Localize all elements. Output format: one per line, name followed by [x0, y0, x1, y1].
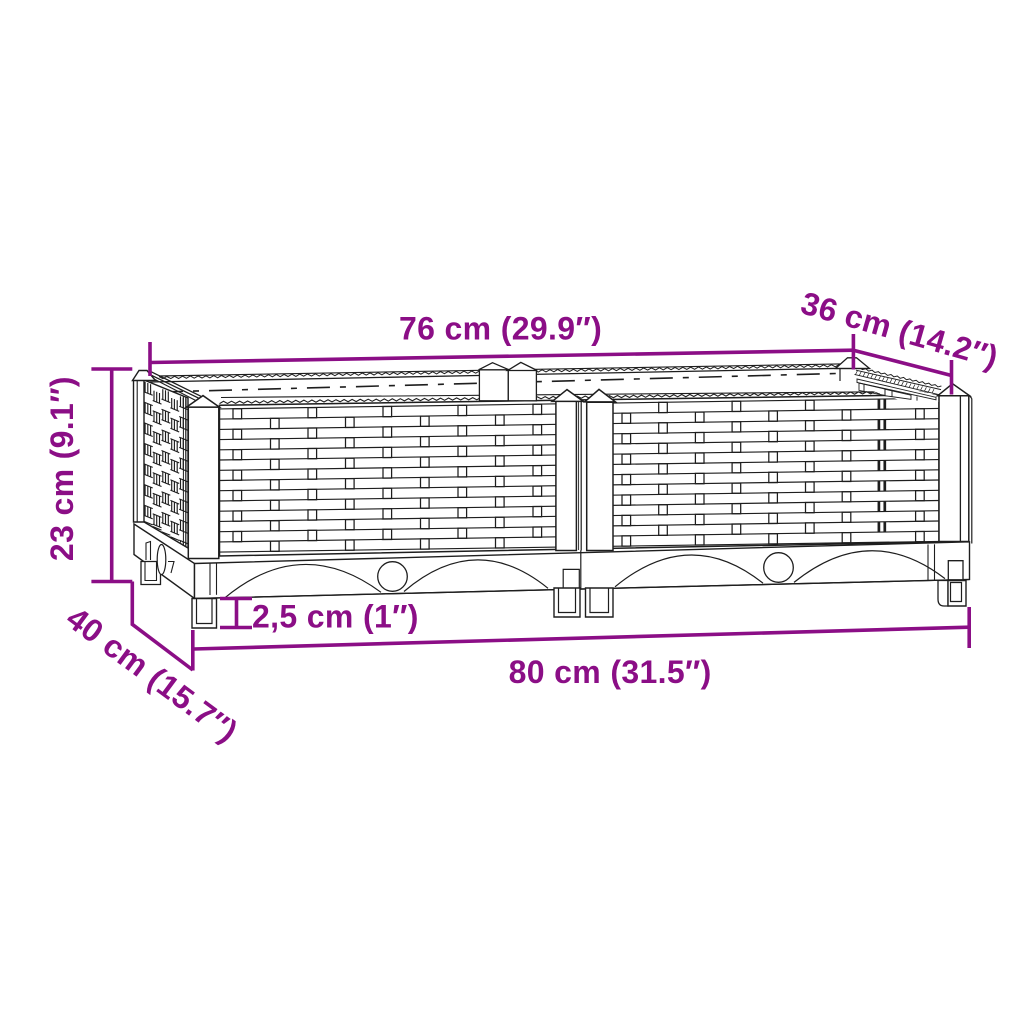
- svg-text:80 cm (31.5″): 80 cm (31.5″): [509, 654, 712, 690]
- svg-text:2,5 cm (1″): 2,5 cm (1″): [252, 599, 419, 635]
- svg-text:23 cm (9.1″): 23 cm (9.1″): [44, 376, 80, 561]
- svg-text:76 cm (29.9″): 76 cm (29.9″): [399, 311, 602, 347]
